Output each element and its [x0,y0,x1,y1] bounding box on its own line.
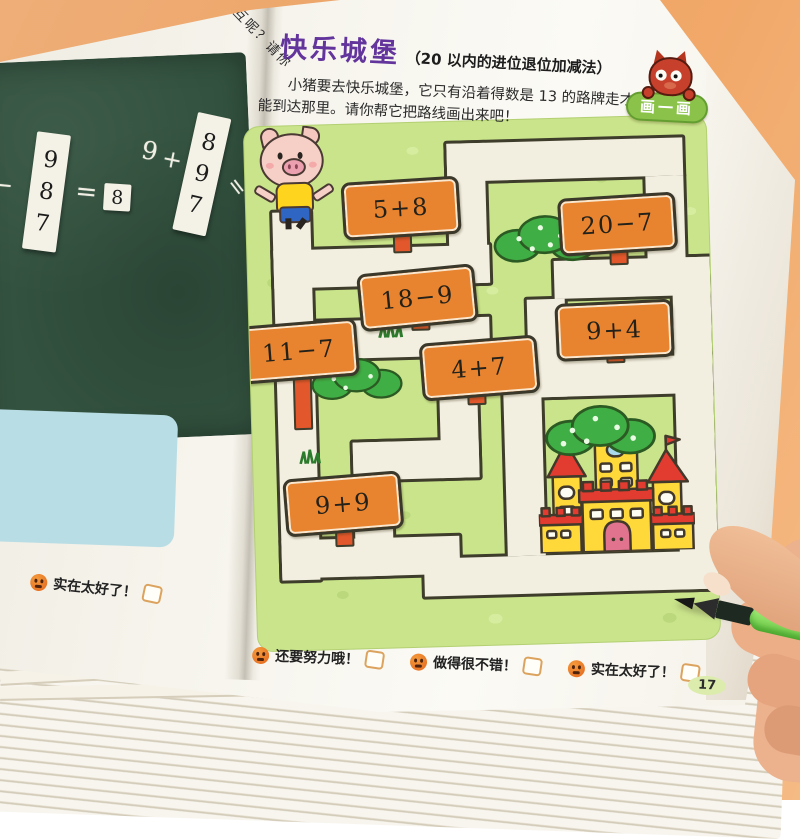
page-title: 快乐城堡 [279,25,401,70]
activity-mascot: 画一画 [620,52,715,125]
feedback-label: 做得很不错！ [433,652,518,676]
open-book: 互呢？请你 6 − 9 8 7 = 8 9 + 8 9 7 = [0,0,800,800]
feedback-label: 还要努力哦！ [275,646,360,670]
chalk-answer-box: 8 [103,183,132,212]
number-strip-left: 9 8 7 [22,131,71,252]
bush-icon [532,400,669,458]
maze-sign: 20−7 [557,192,678,257]
pencil-cone [691,593,719,620]
strip-digit: 8 [199,129,219,158]
photo-scene: 互呢？请你 6 − 9 8 7 = 8 9 + 8 9 7 = [0,0,800,800]
feedback-label: 实在太好了！ [590,659,675,683]
strip-digit: 9 [42,146,60,174]
smiley-icon [568,659,586,677]
lesson-header: 快乐城堡 （20 以内的进位退位加减法） [279,25,613,81]
maze-sign: 9+9 [282,470,404,537]
strip-digit: 8 [37,178,55,206]
maze-sign: 4+7 [418,334,540,401]
maze-sign-label: 18−9 [379,280,455,315]
pig-character-icon [250,125,345,232]
left-page-blue-panel [0,408,178,547]
strip-digit: 7 [33,210,51,238]
smiley-icon [410,653,428,671]
answer-digit: 8 [111,186,124,209]
feedback-checkbox [364,649,385,670]
maze-sign: 18−9 [356,263,479,332]
smiley-icon [252,646,270,664]
page-subtitle: （20 以内的进位退位加减法） [405,47,612,82]
cat-mascot-icon [642,53,696,100]
maze-sign: 9+4 [554,299,675,362]
maze-path-segment [446,137,683,182]
chalk-equals-sign: = [74,176,99,208]
maze-sign-label: 9+9 [314,488,373,520]
maze-sign-label: 20−7 [580,208,656,241]
feedback-label: 实在太好了！ [52,574,138,603]
feedback-checkbox [522,656,543,677]
feedback-item: 实在太好了！ [568,658,701,684]
chalkboard-panel: 6 − 9 8 7 = 8 9 + 8 9 7 = [0,52,262,446]
smiley-icon [29,573,48,592]
maze-panel: 5+8 20−7 18−9 9+4 11−7 4+7 9+9 [243,114,722,653]
pencil-tip [673,593,695,609]
feedback-checkbox [141,583,163,605]
maze-sign-label: 4+7 [450,352,509,384]
feedback-row: 还要努力哦！ 做得很不错！ 实在太好了！ [252,645,700,684]
maze-sign: 5+8 [340,176,461,241]
grass-tuft-icon [297,447,323,464]
chalk-addend: 9 [139,135,160,167]
maze-sign-label: 5+8 [372,192,430,224]
feedback-item: 做得很不错！ [410,651,543,677]
chalk-plus-sign: + [160,144,185,175]
feedback-item: 还要努力哦！ [252,645,385,671]
maze-sign-label: 11−7 [261,334,337,368]
maze-sign: 11−7 [243,317,360,384]
maze-sign-label: 9+4 [586,315,644,346]
feedback-item-left-page: 实在太好了！ [29,571,162,605]
chalk-minus-sign: − [0,170,14,200]
number-strip-right: 8 9 7 [172,112,231,237]
strip-digit: 7 [185,191,205,220]
strip-digit: 9 [192,160,212,189]
